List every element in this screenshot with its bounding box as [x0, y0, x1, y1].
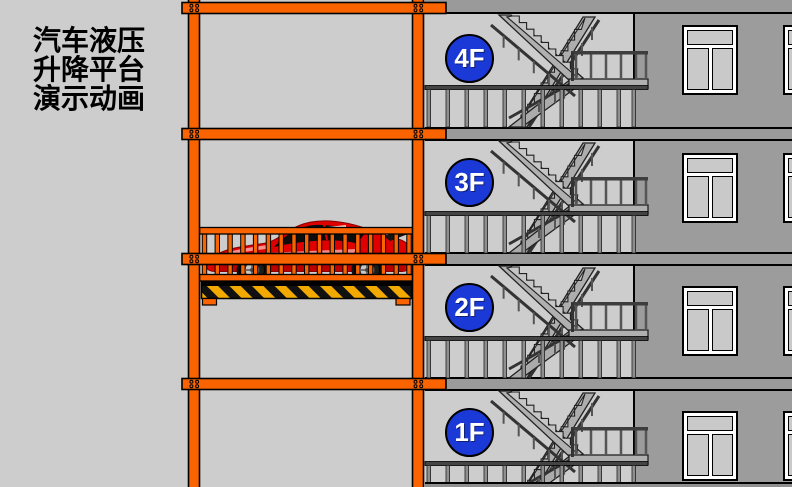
frame-beam-3f [182, 129, 446, 140]
frame-beam-top [182, 3, 446, 14]
bolt-plate [190, 4, 423, 388]
cage-bottom-rail [200, 275, 414, 282]
frame-post-left [189, 0, 200, 487]
title-line-3: 演示动画 [33, 84, 163, 113]
frame-beam-2f [182, 254, 446, 265]
lift-demo-scene: 4F 3F 2F 1F [0, 0, 792, 487]
staircase-2f [425, 266, 648, 378]
page-title: 汽车液压 升降平台 演示动画 [33, 26, 163, 113]
platform-foot-left [203, 299, 217, 306]
staircase-3f [425, 141, 648, 253]
lift-platform [200, 228, 414, 306]
frame-post-right [413, 0, 424, 487]
platform-foot-right [396, 299, 410, 306]
ground-slab [425, 482, 792, 487]
staircase-1f [425, 391, 648, 487]
cage-top-rail [200, 228, 414, 235]
title-line-2: 升降平台 [33, 55, 163, 84]
frame-beam-1f [182, 379, 446, 390]
staircase-4f [425, 15, 648, 127]
title-line-1: 汽车液压 [33, 26, 163, 55]
